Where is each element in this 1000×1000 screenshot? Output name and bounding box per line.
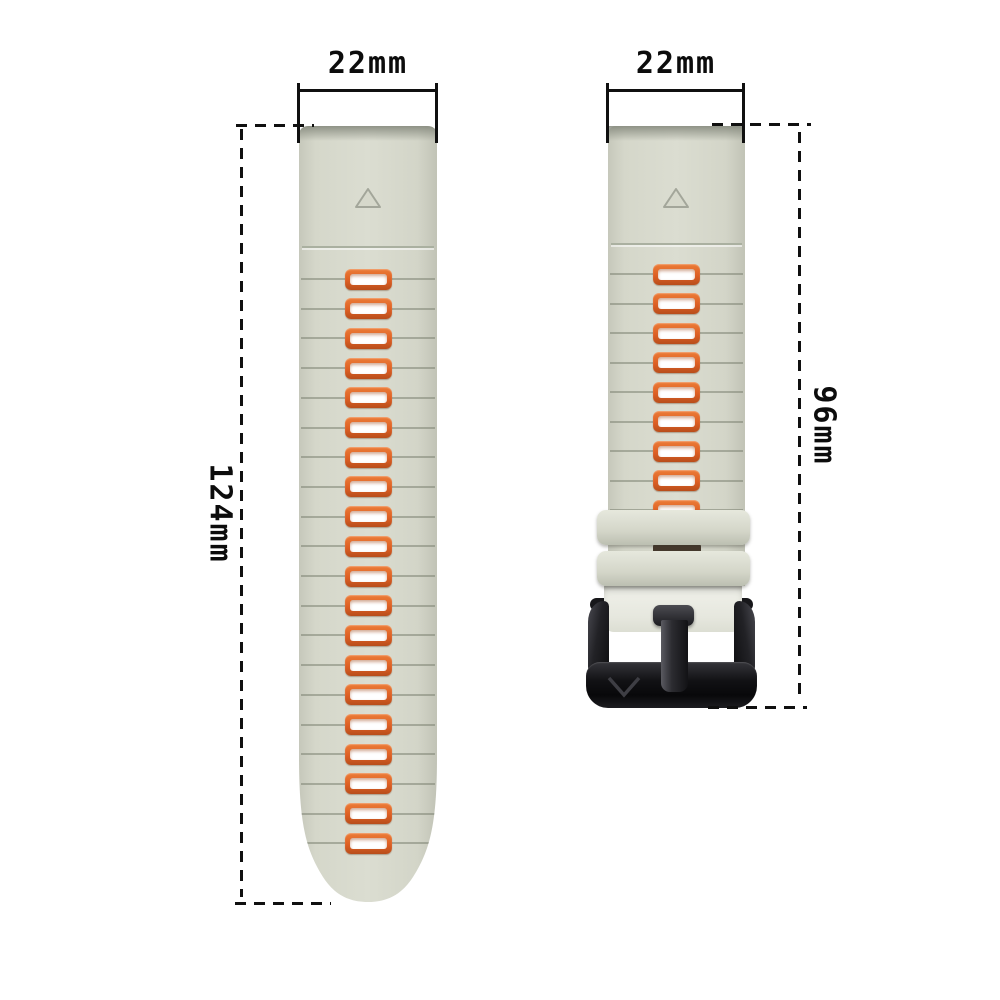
right-length-label: 96mm bbox=[807, 366, 842, 486]
adjustment-hole bbox=[345, 773, 392, 794]
adjustment-hole-inner bbox=[350, 630, 387, 641]
left-strap-holes bbox=[299, 126, 437, 902]
adjustment-hole bbox=[345, 447, 392, 468]
left-strap-body bbox=[299, 126, 437, 902]
left-length-dim-line bbox=[240, 129, 243, 897]
adjustment-hole-inner bbox=[350, 778, 387, 789]
left-length-label: 124mm bbox=[203, 444, 238, 584]
adjustment-hole bbox=[345, 714, 392, 735]
adjustment-hole-inner bbox=[350, 719, 387, 730]
adjustment-hole bbox=[345, 387, 392, 408]
adjustment-hole bbox=[345, 566, 392, 587]
adjustment-hole-inner bbox=[350, 571, 387, 582]
adjustment-hole-inner bbox=[658, 416, 695, 427]
adjustment-hole-inner bbox=[658, 475, 695, 486]
adjustment-hole-inner bbox=[658, 446, 695, 457]
adjustment-hole-inner bbox=[658, 387, 695, 398]
right-length-extension-top bbox=[712, 123, 811, 126]
adjustment-hole-inner bbox=[350, 689, 387, 700]
adjustment-hole bbox=[345, 417, 392, 438]
adjustment-hole bbox=[345, 269, 392, 290]
adjustment-hole-inner bbox=[350, 808, 387, 819]
adjustment-hole bbox=[345, 476, 392, 497]
adjustment-hole-inner bbox=[350, 541, 387, 552]
adjustment-hole bbox=[653, 470, 700, 491]
dim-tick bbox=[297, 83, 300, 143]
watch-band-dimension-diagram: 22mm 22mm 124mm 96mm bbox=[0, 0, 1000, 1000]
adjustment-hole bbox=[653, 441, 700, 462]
adjustment-hole bbox=[345, 625, 392, 646]
adjustment-hole-inner bbox=[350, 660, 387, 671]
left-strap bbox=[299, 126, 437, 902]
adjustment-hole-inner bbox=[350, 392, 387, 403]
adjustment-hole bbox=[653, 352, 700, 373]
adjustment-hole bbox=[653, 411, 700, 432]
adjustment-hole-inner bbox=[350, 422, 387, 433]
adjustment-hole bbox=[345, 833, 392, 854]
adjustment-hole-inner bbox=[350, 452, 387, 463]
adjustment-hole-inner bbox=[350, 303, 387, 314]
adjustment-hole bbox=[345, 655, 392, 676]
right-width-label: 22mm bbox=[616, 46, 736, 81]
adjustment-hole bbox=[345, 506, 392, 527]
buckle-prong bbox=[661, 620, 688, 692]
dim-tick bbox=[606, 83, 609, 143]
adjustment-hole bbox=[653, 382, 700, 403]
adjustment-hole-inner bbox=[350, 511, 387, 522]
keeper-loop bbox=[597, 551, 750, 586]
adjustment-hole-inner bbox=[658, 357, 695, 368]
dim-tick bbox=[742, 83, 745, 143]
dim-tick bbox=[435, 83, 438, 143]
adjustment-hole-inner bbox=[658, 298, 695, 309]
adjustment-hole bbox=[653, 264, 700, 285]
adjustment-hole bbox=[345, 803, 392, 824]
keeper-loop bbox=[597, 510, 750, 545]
left-width-dim-line bbox=[299, 89, 437, 92]
adjustment-hole-inner bbox=[350, 274, 387, 285]
adjustment-hole-inner bbox=[658, 269, 695, 280]
right-width-dim-line bbox=[608, 89, 745, 92]
adjustment-hole-inner bbox=[350, 838, 387, 849]
adjustment-hole-inner bbox=[350, 363, 387, 374]
right-length-extension-bottom bbox=[708, 706, 807, 709]
adjustment-hole bbox=[345, 595, 392, 616]
adjustment-hole bbox=[345, 358, 392, 379]
adjustment-hole bbox=[345, 684, 392, 705]
adjustment-hole bbox=[345, 328, 392, 349]
adjustment-hole bbox=[345, 536, 392, 557]
right-length-dim-line bbox=[798, 132, 801, 702]
buckle-v-logo-icon bbox=[604, 674, 644, 700]
adjustment-hole-inner bbox=[350, 600, 387, 611]
adjustment-hole bbox=[653, 293, 700, 314]
adjustment-hole-inner bbox=[350, 749, 387, 760]
adjustment-hole bbox=[345, 744, 392, 765]
adjustment-hole-inner bbox=[658, 328, 695, 339]
left-length-extension-top bbox=[236, 124, 314, 127]
adjustment-hole bbox=[345, 298, 392, 319]
left-length-extension-bottom bbox=[235, 902, 331, 905]
adjustment-hole-inner bbox=[350, 333, 387, 344]
left-width-label: 22mm bbox=[308, 46, 428, 81]
adjustment-hole-inner bbox=[350, 481, 387, 492]
adjustment-hole bbox=[653, 323, 700, 344]
